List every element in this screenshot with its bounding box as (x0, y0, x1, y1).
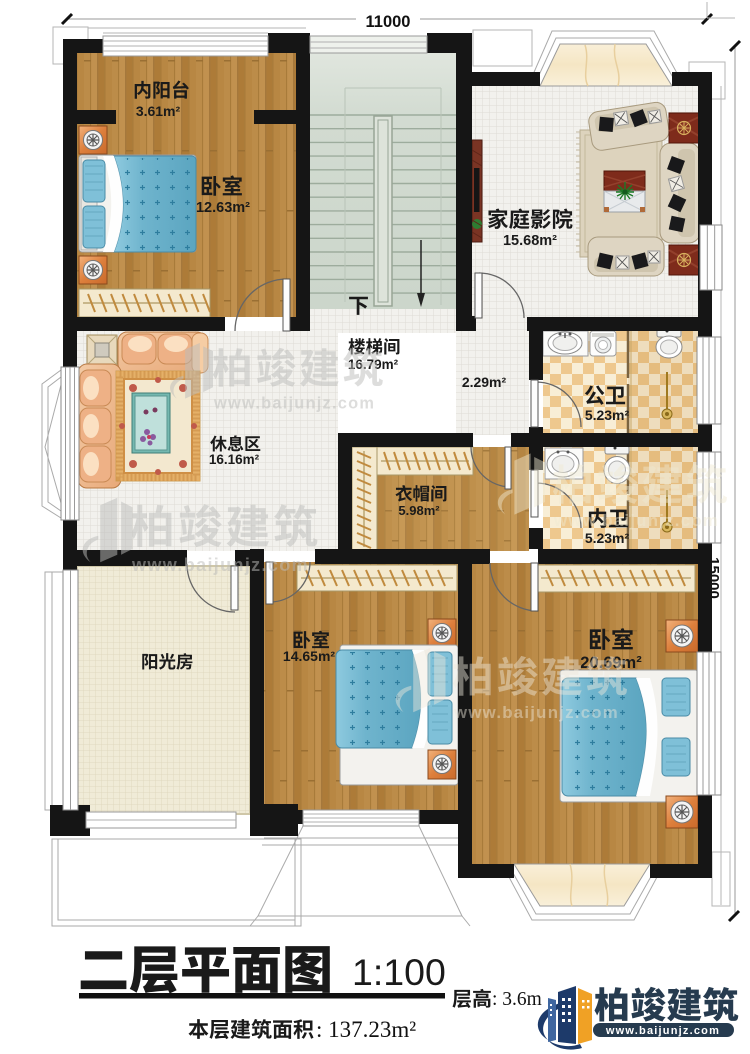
svg-text:www.baijunjz.com: www.baijunjz.com (453, 703, 619, 722)
svg-text:: 137.23m²: : 137.23m² (316, 1017, 416, 1042)
svg-text:5.23m²: 5.23m² (585, 407, 630, 423)
svg-text:www.baijunjz.com: www.baijunjz.com (605, 1025, 720, 1037)
svg-text:15.68m²: 15.68m² (503, 233, 557, 249)
svg-text:www.baijunjz.com: www.baijunjz.com (213, 394, 375, 412)
svg-text:14.65m²: 14.65m² (283, 648, 335, 664)
svg-text:12.63m²: 12.63m² (196, 200, 250, 216)
svg-text:16.16m²: 16.16m² (209, 452, 260, 467)
svg-text:5.98m²: 5.98m² (398, 503, 440, 518)
svg-text:www.baijunjz.com: www.baijunjz.com (553, 511, 719, 530)
svg-text:www.baijunjz.com: www.baijunjz.com (131, 555, 309, 575)
svg-text:2.29m²: 2.29m² (462, 374, 507, 390)
svg-text:3.61m²: 3.61m² (136, 103, 181, 119)
svg-text:5.23m²: 5.23m² (585, 530, 630, 546)
svg-text:1:100: 1:100 (352, 951, 446, 993)
svg-text:: 3.6m: : 3.6m (492, 989, 542, 1010)
svg-text:11000: 11000 (366, 13, 411, 31)
